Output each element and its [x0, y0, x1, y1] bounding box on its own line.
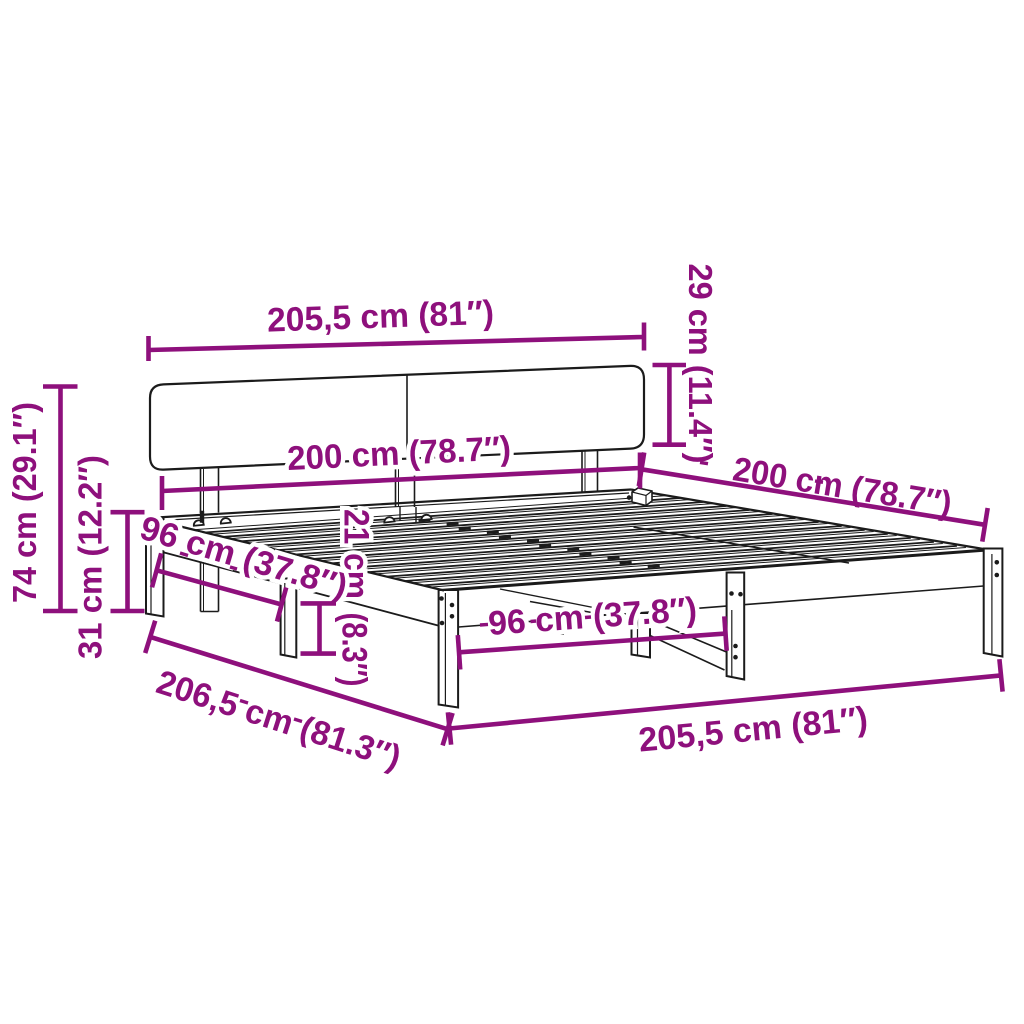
svg-text:29 cm (11.4″): 29 cm (11.4″) — [682, 264, 719, 464]
svg-text:(8.3″): (8.3″) — [334, 613, 373, 687]
svg-text:74 cm (29.1″): 74 cm (29.1″) — [6, 402, 43, 603]
svg-text:205,5 cm (81″): 205,5 cm (81″) — [266, 294, 494, 340]
svg-text:31 cm (12.2″): 31 cm (12.2″) — [72, 455, 109, 659]
